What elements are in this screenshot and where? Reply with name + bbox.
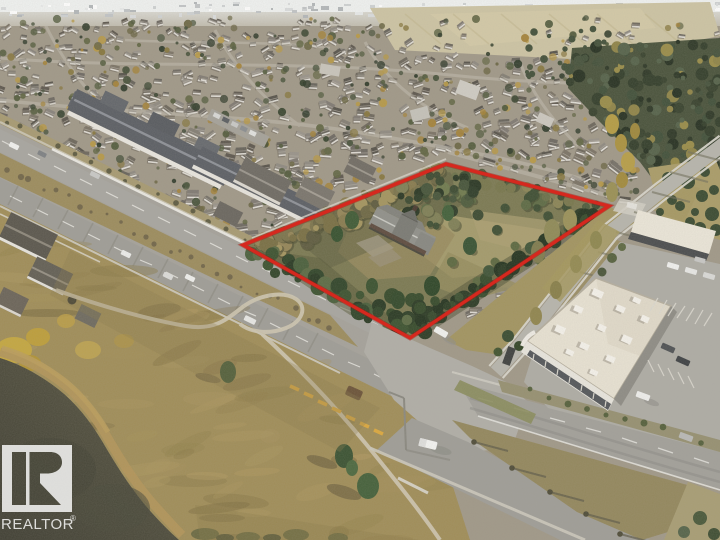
svg-text:®: ® (70, 514, 76, 523)
svg-text:REALTOR: REALTOR (1, 516, 74, 533)
